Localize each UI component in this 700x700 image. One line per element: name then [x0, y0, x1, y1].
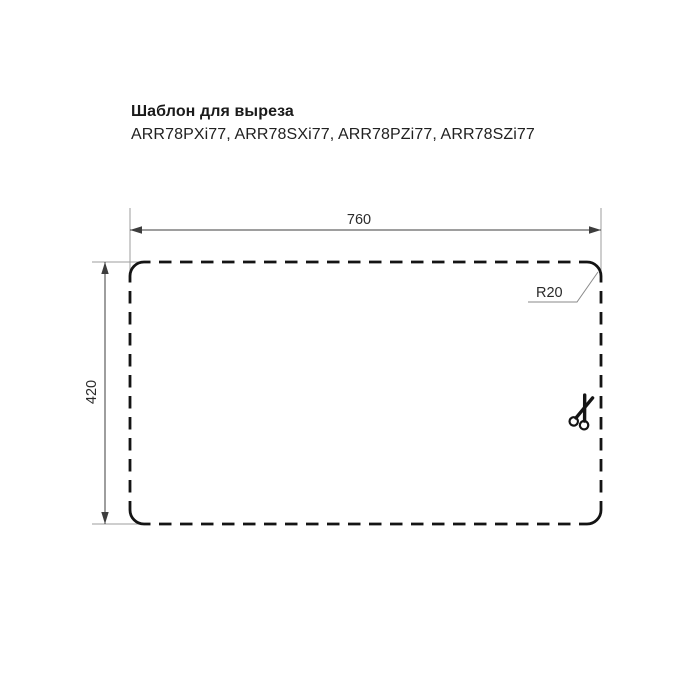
height-dimension-label: 420 — [84, 380, 100, 404]
radius-label: R20 — [536, 285, 563, 301]
corner-arcs — [130, 262, 601, 524]
extension-lines — [92, 208, 601, 524]
cutout-outline — [130, 262, 601, 524]
width-dimension-label: 760 — [347, 212, 371, 228]
scissors-icon — [568, 393, 597, 430]
cutout-template-drawing: 760 420 — [0, 0, 700, 700]
radius-callout: R20 — [528, 272, 598, 302]
page: Шаблон для выреза ARR78PXi77, ARR78SXi77… — [0, 0, 700, 700]
width-dimension: 760 — [130, 212, 601, 234]
height-dimension: 420 — [84, 262, 109, 524]
